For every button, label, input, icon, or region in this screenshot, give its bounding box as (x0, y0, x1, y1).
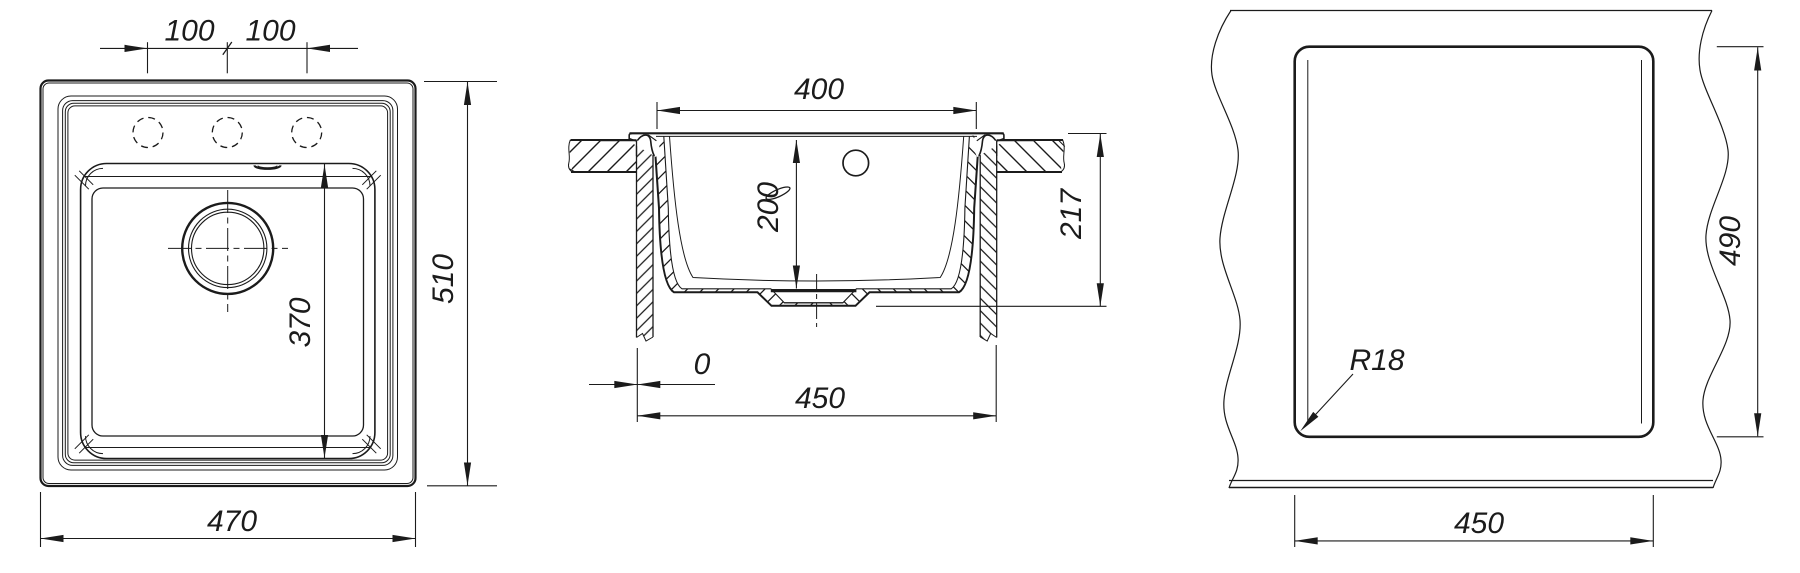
svg-text:100: 100 (245, 15, 295, 48)
svg-text:0: 0 (694, 348, 711, 381)
svg-text:217: 217 (1055, 188, 1088, 240)
svg-text:400: 400 (794, 73, 844, 106)
svg-text:100: 100 (164, 15, 214, 48)
svg-text:450: 450 (1454, 507, 1504, 540)
svg-text:470: 470 (207, 505, 257, 538)
svg-text:490: 490 (1714, 216, 1747, 266)
svg-text:200: 200 (752, 182, 785, 233)
svg-text:450: 450 (795, 382, 845, 415)
svg-text:370: 370 (284, 297, 317, 347)
svg-text:510: 510 (427, 254, 460, 304)
svg-text:R18: R18 (1349, 344, 1404, 377)
